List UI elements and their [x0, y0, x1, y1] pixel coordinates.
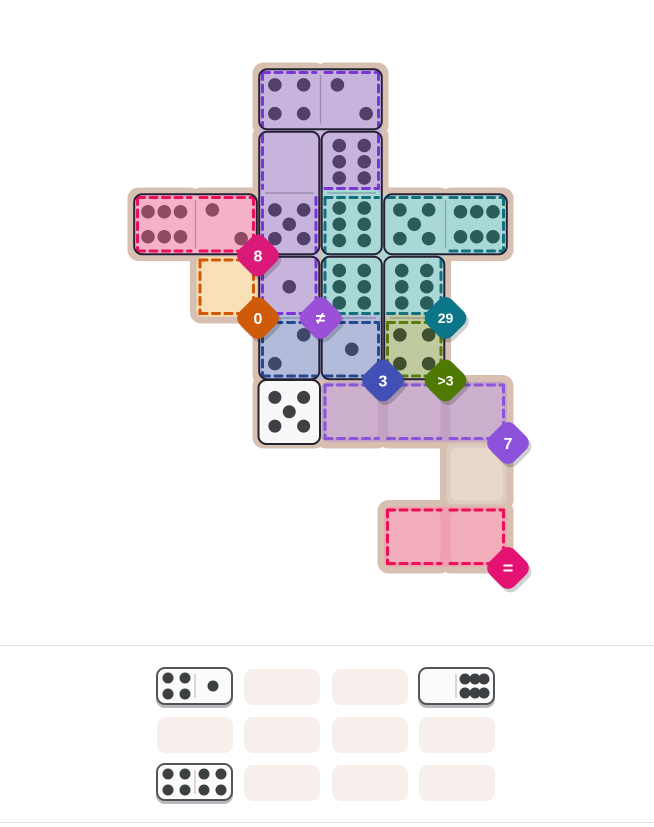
pip — [395, 280, 409, 294]
pip — [470, 230, 484, 244]
tray-domino-4-4[interactable] — [156, 763, 233, 801]
pip — [268, 203, 282, 217]
pip — [454, 205, 468, 219]
pip — [297, 78, 311, 92]
region-mauve — [322, 382, 507, 442]
tray-domino-4-1[interactable] — [156, 667, 233, 705]
tray-domino-divider — [194, 770, 196, 794]
pip — [454, 230, 468, 244]
pip — [395, 264, 409, 278]
pip — [332, 139, 346, 153]
pip — [357, 171, 371, 185]
page-bottom-line — [0, 822, 654, 823]
empty-cell-inner — [201, 261, 254, 314]
tray-slot-r0c2[interactable] — [332, 669, 408, 705]
pip — [268, 107, 282, 121]
pip — [268, 391, 281, 404]
pip — [162, 673, 173, 684]
tray-slot-r1c1[interactable] — [244, 717, 320, 753]
domino-half — [259, 132, 319, 197]
pip — [359, 107, 373, 121]
pip — [486, 205, 500, 219]
pip — [357, 201, 371, 215]
tray-domino-half-4 — [195, 765, 232, 799]
pip — [357, 280, 371, 294]
pip — [282, 217, 296, 231]
app-root: ≠82903>37= — [0, 0, 654, 827]
pip — [422, 232, 436, 246]
pip — [395, 296, 409, 310]
pip — [216, 769, 227, 780]
tray-slot-r2c1[interactable] — [244, 765, 320, 801]
pip — [345, 342, 359, 356]
pip — [297, 107, 311, 121]
pip — [332, 234, 346, 248]
pip — [179, 769, 190, 780]
tray-domino-half-1 — [195, 669, 232, 703]
pip — [199, 784, 210, 795]
tray-slot-r1c2[interactable] — [332, 717, 408, 753]
pip — [393, 232, 407, 246]
pip — [297, 420, 310, 433]
pip — [332, 155, 346, 169]
domino-half — [317, 69, 382, 129]
tray-slot-r0c1[interactable] — [244, 669, 320, 705]
pip — [199, 769, 210, 780]
badge-label: = — [503, 558, 514, 578]
pip — [332, 280, 346, 294]
pip — [179, 673, 190, 684]
tray-domino-half-6 — [456, 669, 493, 703]
tray-domino-0-6[interactable] — [418, 667, 495, 705]
domino-half — [322, 190, 382, 255]
pip — [174, 205, 188, 219]
puzzle-board: ≠82903>37= — [0, 0, 654, 612]
tray-slot-r1c3[interactable] — [419, 717, 495, 753]
pip — [179, 688, 190, 699]
pip — [297, 203, 311, 217]
domino-half — [134, 194, 199, 254]
pip — [162, 688, 173, 699]
pip — [357, 264, 371, 278]
tray-domino-divider — [455, 674, 457, 698]
region-rose — [384, 507, 507, 567]
pip — [206, 203, 220, 217]
domino-half — [442, 194, 507, 254]
domino-half — [259, 69, 324, 129]
tray-domino-half-0 — [420, 669, 457, 703]
pip — [407, 217, 421, 231]
pip — [268, 357, 282, 371]
pip — [174, 230, 188, 244]
pip — [357, 296, 371, 310]
pip — [357, 155, 371, 169]
pip — [162, 784, 173, 795]
pip — [207, 681, 218, 692]
free-cell-inner — [451, 448, 504, 501]
pip — [422, 203, 436, 217]
tray-domino-divider — [194, 674, 196, 698]
badge-label: 8 — [254, 248, 263, 265]
pip — [479, 674, 490, 685]
pip — [357, 217, 371, 231]
pip — [331, 78, 345, 92]
empty-cell-inner — [451, 511, 504, 564]
badge-label: 29 — [438, 310, 454, 326]
pip — [420, 264, 434, 278]
pip — [486, 230, 500, 244]
pip — [268, 78, 282, 92]
pip — [282, 280, 296, 294]
tray-slot-r2c2[interactable] — [332, 765, 408, 801]
pip — [393, 328, 407, 342]
pip — [216, 784, 227, 795]
pip — [332, 171, 346, 185]
pip — [357, 139, 371, 153]
tray-domino-half-4 — [158, 669, 195, 703]
pip — [297, 232, 311, 246]
domino-half — [322, 132, 382, 197]
empty-cell-inner — [388, 511, 441, 564]
pip — [332, 264, 346, 278]
badge-label: 7 — [504, 436, 513, 453]
pip — [157, 230, 171, 244]
pip — [141, 230, 155, 244]
badge-label: ≠ — [316, 309, 326, 328]
pip — [332, 201, 346, 215]
pip — [157, 205, 171, 219]
tray-slot-r2c3[interactable] — [419, 765, 495, 801]
badge-label: 0 — [254, 311, 263, 328]
tray-slot-r1c0[interactable] — [157, 717, 233, 753]
pip — [470, 205, 484, 219]
pip — [332, 217, 346, 231]
pip — [357, 234, 371, 248]
tray-domino-half-4 — [158, 765, 195, 799]
pip — [420, 280, 434, 294]
pip — [393, 203, 407, 217]
pip — [479, 687, 490, 698]
badge-label: >3 — [438, 373, 454, 389]
tray-divider-line — [0, 645, 654, 646]
badge-label: 3 — [379, 373, 388, 390]
pip — [268, 420, 281, 433]
empty-cell-inner — [326, 386, 379, 439]
pip — [141, 205, 155, 219]
pip — [162, 769, 173, 780]
pip — [297, 391, 310, 404]
pip — [283, 405, 296, 418]
pip — [179, 784, 190, 795]
